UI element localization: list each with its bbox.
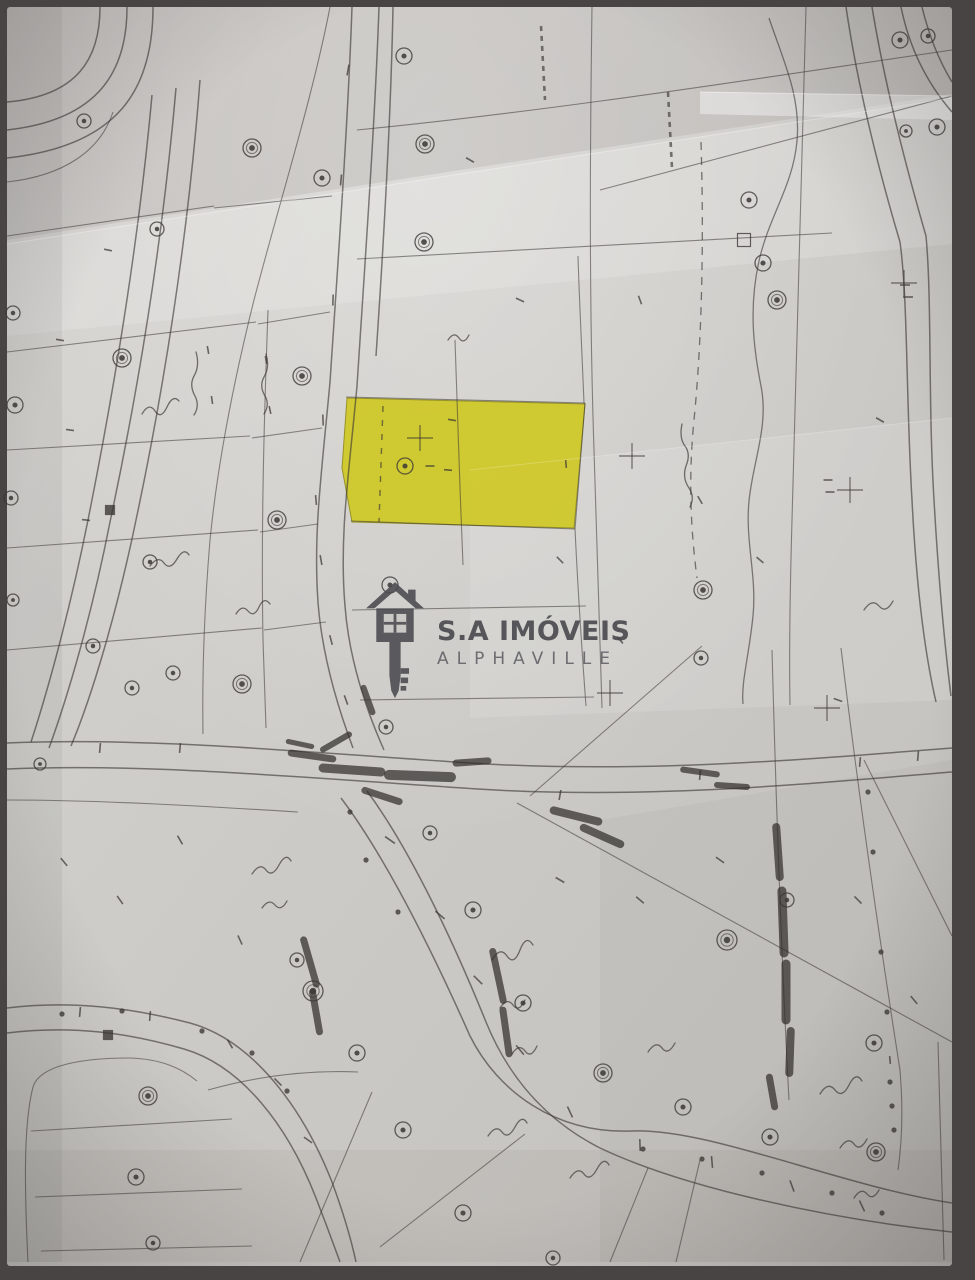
survey-map [0, 0, 975, 1280]
map-photo: S.A IMÓVEIS ALPHAVILLE [0, 0, 975, 1280]
vignette [7, 7, 952, 1266]
